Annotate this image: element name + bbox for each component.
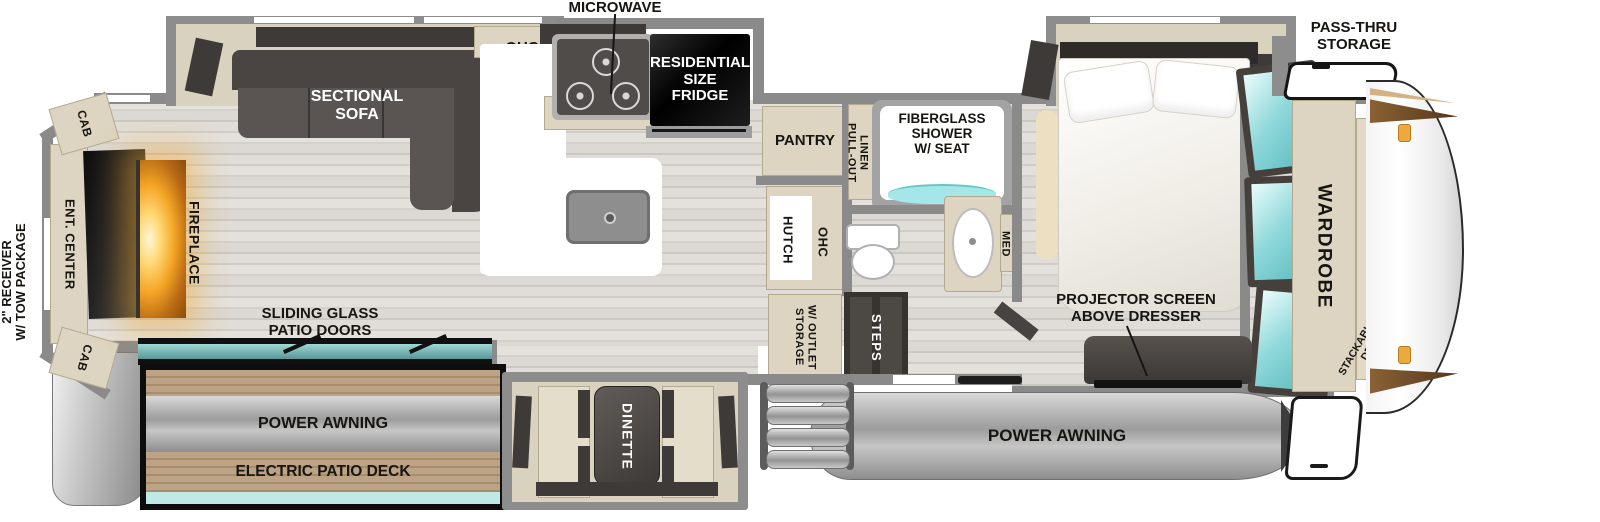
entry-step-2 — [766, 406, 850, 425]
burner-left — [566, 82, 594, 110]
fridge-base — [646, 126, 752, 138]
shower-label: FIBERGLASS SHOWER W/ SEAT — [880, 112, 1004, 157]
bed-side-bench — [1036, 110, 1058, 260]
rv-floorplan-diagram: 2" RECEIVER W/ TOW PACKAGE ENT. CENTER C… — [0, 0, 1600, 522]
top-rear-window — [106, 95, 150, 102]
bench-right-cushion-a — [662, 390, 674, 438]
sliding-doors-label: SLIDING GLASS PATIO DOORS — [222, 306, 418, 339]
wardrobe: WARDROBE — [1292, 100, 1356, 392]
rear-awning-roll: POWER AWNING — [146, 396, 500, 452]
interior-steps: STEPS — [844, 292, 908, 384]
front-cap — [1366, 80, 1464, 414]
steps-label: STEPS — [869, 314, 883, 362]
dinette-window-bottom — [536, 482, 718, 496]
wardrobe-label: WARDROBE — [1313, 184, 1334, 309]
entry-step-1 — [766, 384, 850, 403]
dinette-table: DINETTE — [594, 386, 660, 486]
storage-outlet-label: STORAGE W/ OUTLET — [793, 305, 818, 370]
fridge-base-line — [652, 129, 746, 132]
deck-wood-bottom: ELECTRIC PATIO DECK — [146, 452, 500, 492]
electric-patio-deck: POWER AWNING ELECTRIC PATIO DECK — [140, 364, 506, 510]
burner-top — [592, 48, 620, 76]
bath-bedroom-wall — [1012, 100, 1022, 302]
front-awning: POWER AWNING — [810, 392, 1304, 480]
sofa-slide-window-a — [254, 17, 414, 23]
entry-door — [893, 375, 955, 384]
front-compartment-handle — [1310, 464, 1328, 468]
dinette-label: DINETTE — [619, 403, 634, 470]
fireplace-label: FIREPLACE — [186, 178, 202, 308]
toilet-bowl — [851, 244, 895, 280]
bed-slide-window-top — [1090, 17, 1220, 23]
ent-center-cabinet: ENT. CENTER — [50, 144, 88, 344]
passthru-handle — [1312, 64, 1330, 69]
dresser — [1084, 336, 1252, 384]
receiver-tow-label: 2" RECEIVER W/ TOW PACKAGE — [0, 168, 40, 396]
storage-outlet-cabinet: STORAGE W/ OUTLET — [768, 294, 842, 380]
passthru-label: PASS-THRU STORAGE — [1292, 20, 1416, 53]
sectional-sofa-label: SECTIONAL SOFA — [262, 88, 452, 123]
entry-threshold — [958, 376, 1022, 384]
pantry-bottom-wall — [756, 176, 848, 185]
marker-light-bottom — [1398, 346, 1411, 364]
sink-faucet — [604, 212, 616, 224]
hutch-label: HUTCH — [780, 200, 795, 280]
ent-center-label: ENT. CENTER — [62, 199, 77, 290]
deck-wood-top — [146, 370, 500, 396]
bench-left-cushion-a — [578, 390, 590, 438]
entry-step-4 — [766, 450, 850, 469]
linen-label: PULL-OUT LINEN — [845, 106, 870, 200]
hutch-ohc-label: OHC — [815, 214, 830, 270]
cab-lower-label: CAB — [74, 343, 94, 373]
sofa-slide-window-b — [424, 17, 542, 23]
fridge: RESIDENTIAL SIZE FRIDGE — [650, 34, 750, 126]
rear-awning-label: POWER AWNING — [258, 415, 388, 433]
vanity-faucet — [969, 238, 976, 245]
front-awning-label: POWER AWNING — [988, 427, 1126, 446]
burner-right — [612, 82, 640, 110]
med-label: MED — [999, 224, 1011, 264]
dresser-base — [1094, 380, 1242, 388]
fireplace — [136, 160, 186, 318]
entry-step-3 — [766, 428, 850, 447]
pillow-right — [1152, 59, 1241, 119]
pantry-label: PANTRY — [775, 133, 835, 150]
deck-edge — [146, 492, 500, 504]
pantry: PANTRY — [762, 106, 848, 176]
projector-screen-label: PROJECTOR SCREEN ABOVE DRESSER — [1026, 292, 1246, 325]
deck-label: ELECTRIC PATIO DECK — [235, 463, 410, 480]
kitchen-step-wall — [753, 18, 764, 104]
cab-upper-label: CAB — [74, 109, 94, 139]
marker-light-top — [1398, 124, 1411, 142]
